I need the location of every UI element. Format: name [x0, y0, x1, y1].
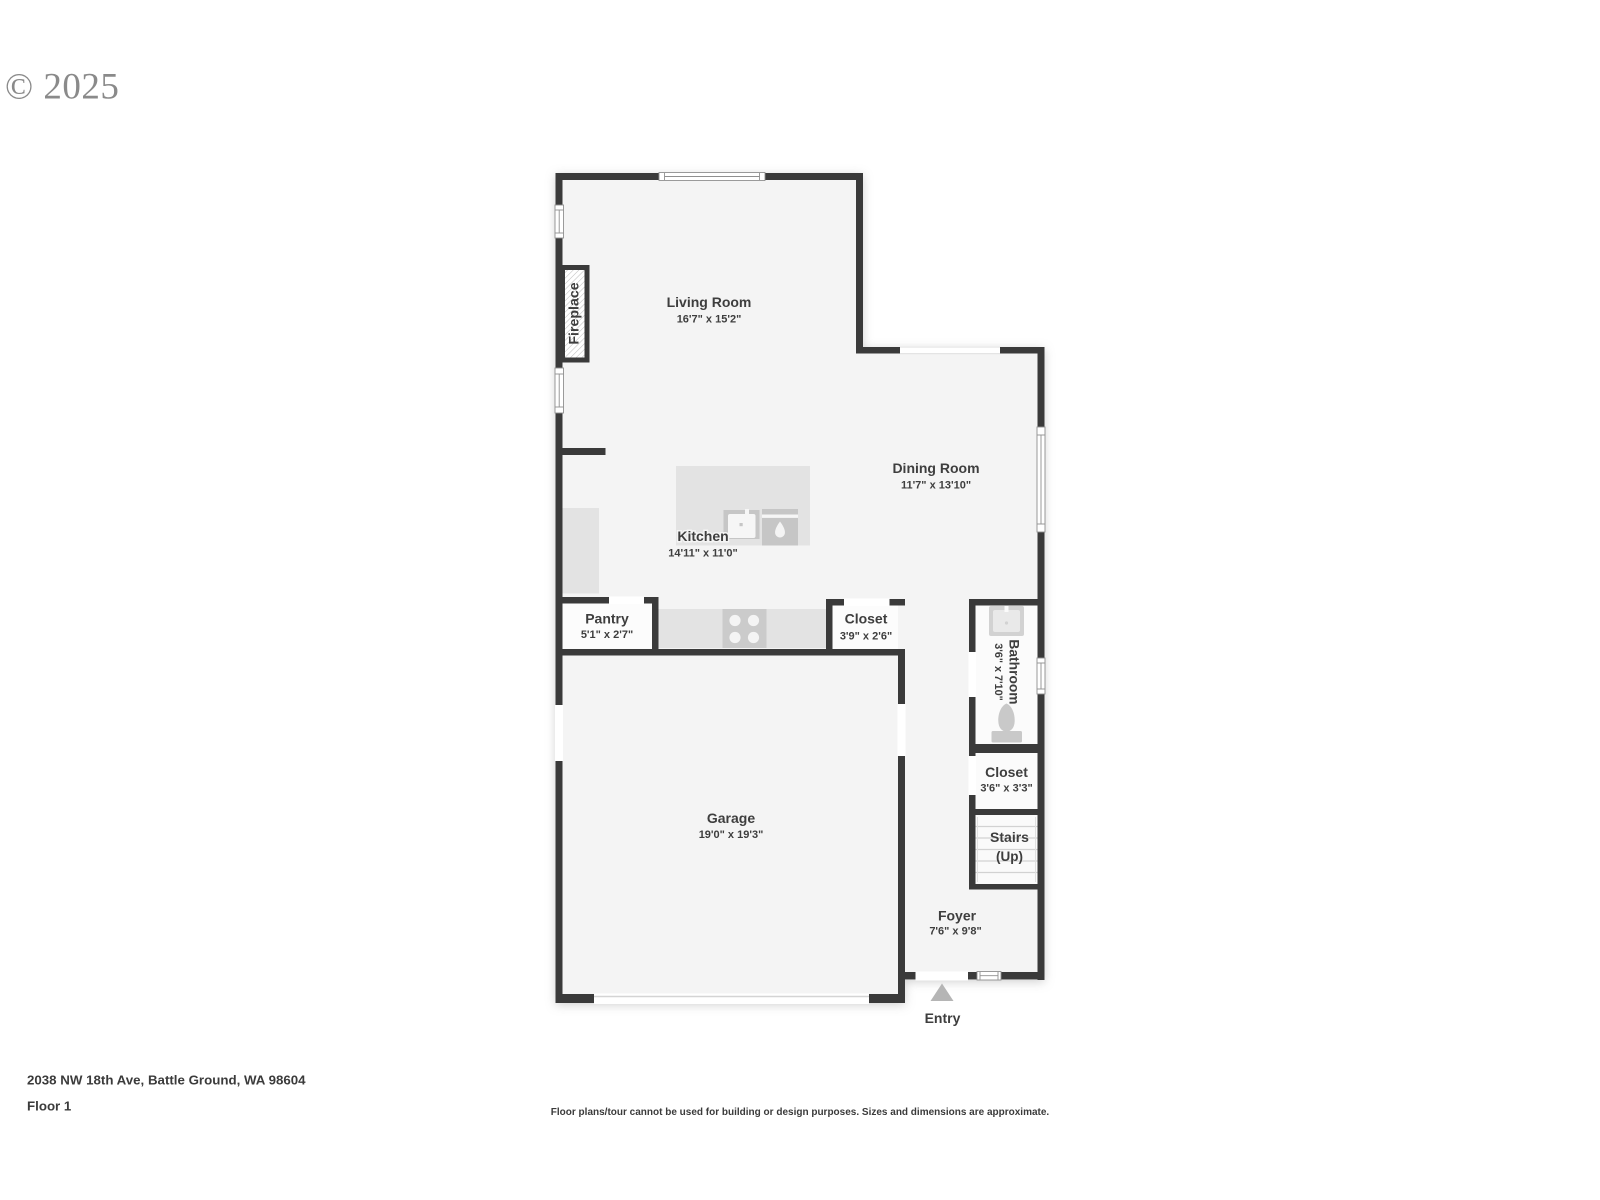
svg-text:3'6" x 3'3": 3'6" x 3'3"	[980, 783, 1032, 795]
svg-text:2038 NW 18th Ave, Battle Groun: 2038 NW 18th Ave, Battle Ground, WA 9860…	[27, 1073, 306, 1088]
svg-text:7'6" x 9'8": 7'6" x 9'8"	[929, 926, 981, 938]
svg-text:5'1" x 2'7": 5'1" x 2'7"	[581, 629, 633, 641]
svg-text:Stairs: Stairs	[990, 829, 1029, 845]
svg-text:Pantry: Pantry	[585, 611, 629, 627]
svg-text:14'11" x 11'0": 14'11" x 11'0"	[668, 548, 738, 560]
svg-text:Bathroom: Bathroom	[1007, 639, 1022, 704]
svg-text:Living Room: Living Room	[667, 294, 752, 310]
svg-text:Garage: Garage	[707, 810, 755, 826]
svg-text:Floor plans/tour cannot be use: Floor plans/tour cannot be used for buil…	[551, 1107, 1050, 1118]
svg-text:Foyer: Foyer	[938, 908, 977, 924]
svg-text:Kitchen: Kitchen	[677, 528, 728, 544]
svg-text:© 2025: © 2025	[5, 67, 119, 108]
svg-text:11'7" x 13'10": 11'7" x 13'10"	[901, 480, 971, 492]
svg-text:3'9" x 2'6": 3'9" x 2'6"	[840, 631, 892, 643]
svg-text:19'0" x 19'3": 19'0" x 19'3"	[699, 829, 764, 841]
svg-text:16'7" x 15'2": 16'7" x 15'2"	[677, 314, 742, 326]
svg-text:Dining Room: Dining Room	[892, 460, 979, 476]
svg-text:3'6" x 7'10": 3'6" x 7'10"	[992, 643, 1004, 700]
svg-text:Fireplace: Fireplace	[567, 282, 583, 344]
svg-text:Entry: Entry	[925, 1010, 961, 1026]
svg-text:Floor 1: Floor 1	[27, 1099, 72, 1114]
svg-text:(Up): (Up)	[996, 849, 1023, 864]
svg-text:Closet: Closet	[985, 764, 1028, 780]
svg-text:Closet: Closet	[845, 611, 888, 627]
